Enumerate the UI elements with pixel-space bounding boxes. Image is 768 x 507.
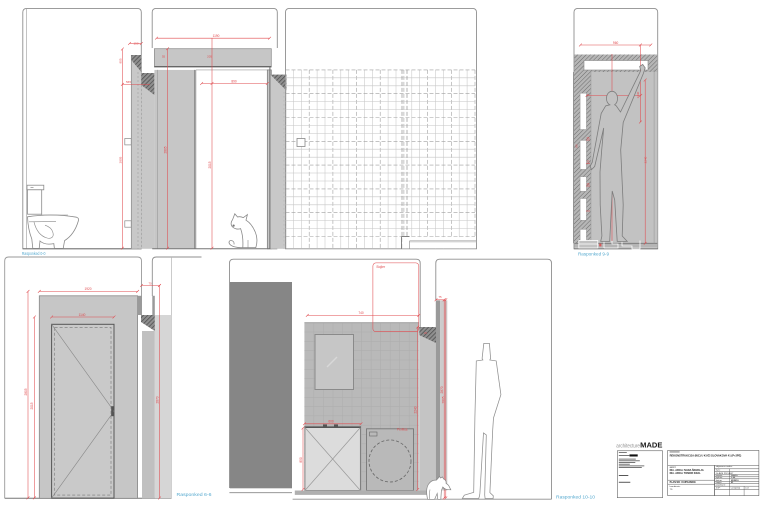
svg-text:faza:: faza:	[716, 470, 721, 472]
svg-text:55: 55	[162, 55, 166, 59]
svg-text:2870: 2870	[155, 396, 159, 403]
svg-text:2240: 2240	[414, 406, 418, 413]
svg-text:projektant:: projektant:	[716, 484, 726, 487]
svg-text:150: 150	[133, 42, 138, 46]
svg-text:2870: 2870	[440, 386, 444, 393]
svg-text:Perilica: Perilica	[397, 428, 408, 432]
svg-text:1230: 1230	[636, 91, 640, 98]
svg-text:205: 205	[207, 55, 212, 59]
svg-text:Rasponked 10-10: Rasponked 10-10	[556, 494, 595, 499]
svg-text:MADE: MADE	[640, 441, 662, 450]
svg-text:2805: 2805	[163, 146, 167, 153]
svg-text:70: 70	[148, 281, 152, 285]
svg-text:600: 600	[328, 419, 334, 423]
svg-text:2015: 2015	[208, 161, 212, 168]
svg-text:Rasponked 6-6: Rasponked 6-6	[177, 492, 212, 497]
svg-text:odgovorna osoba:: odgovorna osoba:	[716, 465, 733, 468]
svg-text:2805: 2805	[442, 396, 446, 403]
svg-text:PLAN WC I KUPAONICE: PLAN WC I KUPAONICE	[670, 481, 697, 484]
svg-text:1190: 1190	[213, 34, 220, 38]
svg-text:Bojler: Bojler	[377, 265, 387, 269]
svg-text:890: 890	[231, 79, 237, 83]
svg-text:565: 565	[126, 80, 131, 84]
svg-text:ZOP:: ZOP:	[716, 488, 721, 490]
svg-text:List:: List:	[745, 487, 749, 490]
svg-text:740: 740	[358, 311, 364, 315]
svg-text:architecture: architecture	[616, 443, 640, 449]
svg-text:1140: 1140	[79, 313, 86, 317]
svg-text:koordinate:: koordinate:	[670, 485, 681, 488]
svg-text:2015: 2015	[30, 402, 34, 409]
svg-text:2805: 2805	[24, 388, 28, 395]
svg-text:mjerilo:: mjerilo:	[716, 476, 723, 479]
svg-text:2805: 2805	[118, 156, 122, 163]
svg-text:2240: 2240	[643, 156, 647, 163]
svg-text:1920: 1920	[84, 287, 91, 291]
svg-text:v. [mjerilo]: v. [mjerilo]	[731, 487, 741, 490]
svg-text:80: 80	[575, 144, 579, 148]
svg-text:905: 905	[118, 58, 122, 63]
svg-text:75: 75	[438, 295, 442, 299]
svg-text:Rasponked 0-0: Rasponked 0-0	[22, 251, 46, 256]
svg-text:960: 960	[613, 41, 619, 45]
svg-text:850: 850	[299, 457, 303, 463]
svg-text:DIA. ARCH. TOMOR KRAL: DIA. ARCH. TOMOR KRAL	[670, 472, 702, 475]
svg-text:Rasponked 9-9: Rasponked 9-9	[578, 251, 609, 256]
svg-text:TD: TD	[670, 489, 673, 491]
